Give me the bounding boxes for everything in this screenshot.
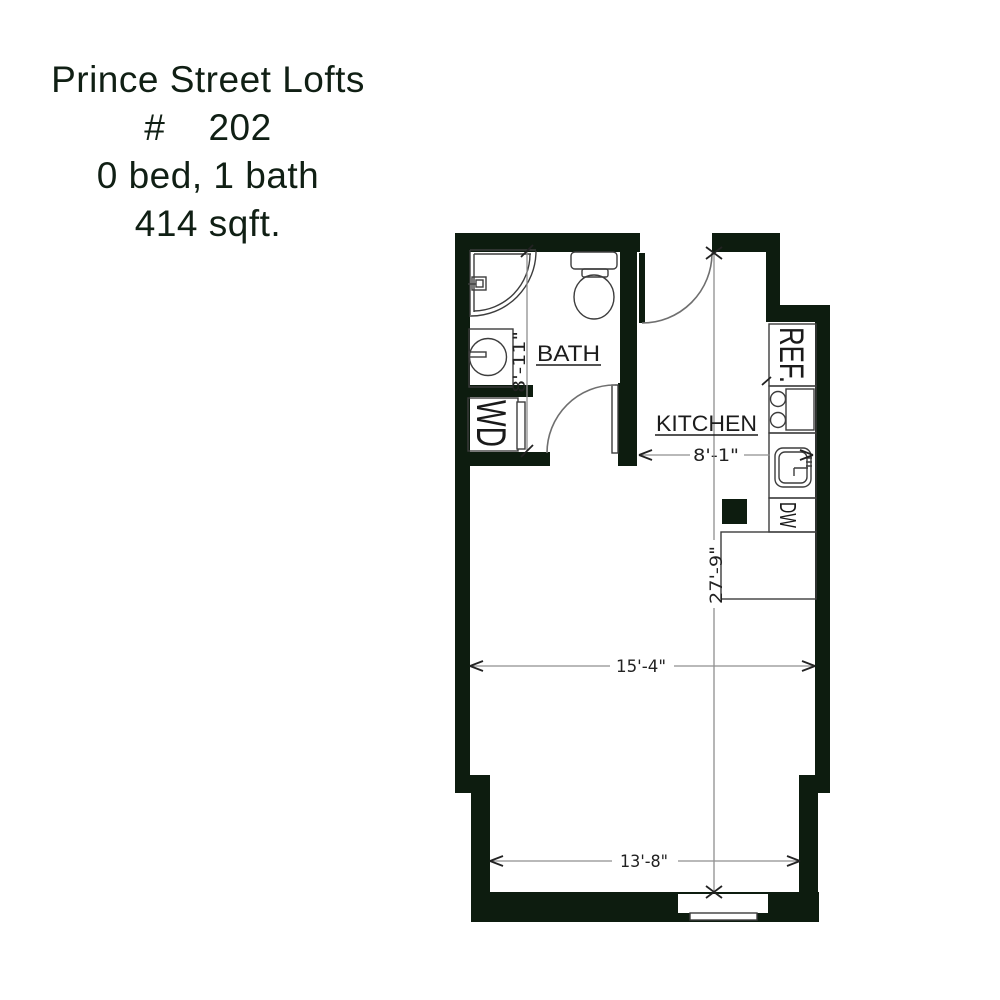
wall-kitchen-upper xyxy=(766,252,780,308)
wall-bath-bottom xyxy=(455,452,550,466)
dishwasher-label: DW xyxy=(775,502,801,528)
room-labels: BATH KITCHEN xyxy=(536,341,758,436)
window xyxy=(678,894,768,920)
stove-oven xyxy=(786,389,814,430)
vanity-sink xyxy=(469,329,513,387)
shower-glass-outer-arc xyxy=(471,251,536,316)
shower-pan-edges xyxy=(470,250,536,317)
wd-label: WD xyxy=(468,400,515,447)
dimension-lower-width: 13'-8" xyxy=(490,852,800,872)
wall-left-lower xyxy=(471,775,490,894)
bath-door-swing-arc xyxy=(547,385,615,453)
bath-label: BATH xyxy=(537,341,600,366)
entry-door xyxy=(639,253,712,323)
toilet-tank xyxy=(571,252,617,269)
kitchen-faucet xyxy=(794,458,812,476)
bath-door-leaf xyxy=(612,385,618,453)
vanity-faucet xyxy=(469,352,486,357)
toilet-bowl xyxy=(574,275,614,319)
shower xyxy=(468,250,536,317)
entry-door-swing-arc xyxy=(642,253,712,323)
dimension-kitchen-width: 8'-1" xyxy=(639,446,813,466)
toilet xyxy=(571,252,617,319)
shower-head-inner xyxy=(476,280,483,287)
stove-burner-top xyxy=(771,392,786,407)
toilet-neck xyxy=(582,269,608,277)
wd-door xyxy=(517,402,525,449)
window-sill xyxy=(690,913,757,920)
wall-top-right xyxy=(712,233,780,252)
floor-plan-page: Prince Street Lofts # 202 0 bed, 1 bath … xyxy=(0,0,1000,1000)
wall-top-bath xyxy=(455,233,640,252)
closet-outline xyxy=(721,532,816,599)
wall-kitchen-step xyxy=(766,305,830,322)
dim-label-bath-depth: 8'-11" xyxy=(510,331,530,393)
bath-door xyxy=(547,385,618,453)
stove-burner-bottom xyxy=(771,413,786,428)
dimension-living-width: 15'-4" xyxy=(470,657,815,677)
kitchen-label: KITCHEN xyxy=(656,411,757,436)
washer-dryer: WD xyxy=(468,398,525,451)
wall-bath-door-jamb xyxy=(618,383,637,466)
entry-door-leaf xyxy=(639,253,645,323)
window-opening xyxy=(678,894,768,913)
stove-box xyxy=(769,386,816,433)
dim-label-living-width: 15'-4" xyxy=(616,657,666,677)
floor-plan-svg: WD REF. DW 8'-11" xyxy=(0,0,1000,1000)
dim-label-unit-length: 27'-9" xyxy=(707,546,727,604)
dim-label-lower-width: 13'-8" xyxy=(620,852,668,872)
wall-left xyxy=(455,233,470,793)
dimension-unit-length: 27'-9" xyxy=(706,247,727,898)
refrigerator-label: REF. xyxy=(772,327,810,383)
column-post xyxy=(722,499,747,524)
dim-label-kitchen-width: 8'-1" xyxy=(693,446,739,466)
wall-right xyxy=(815,305,830,793)
kitchen-counter: REF. DW xyxy=(769,324,816,532)
